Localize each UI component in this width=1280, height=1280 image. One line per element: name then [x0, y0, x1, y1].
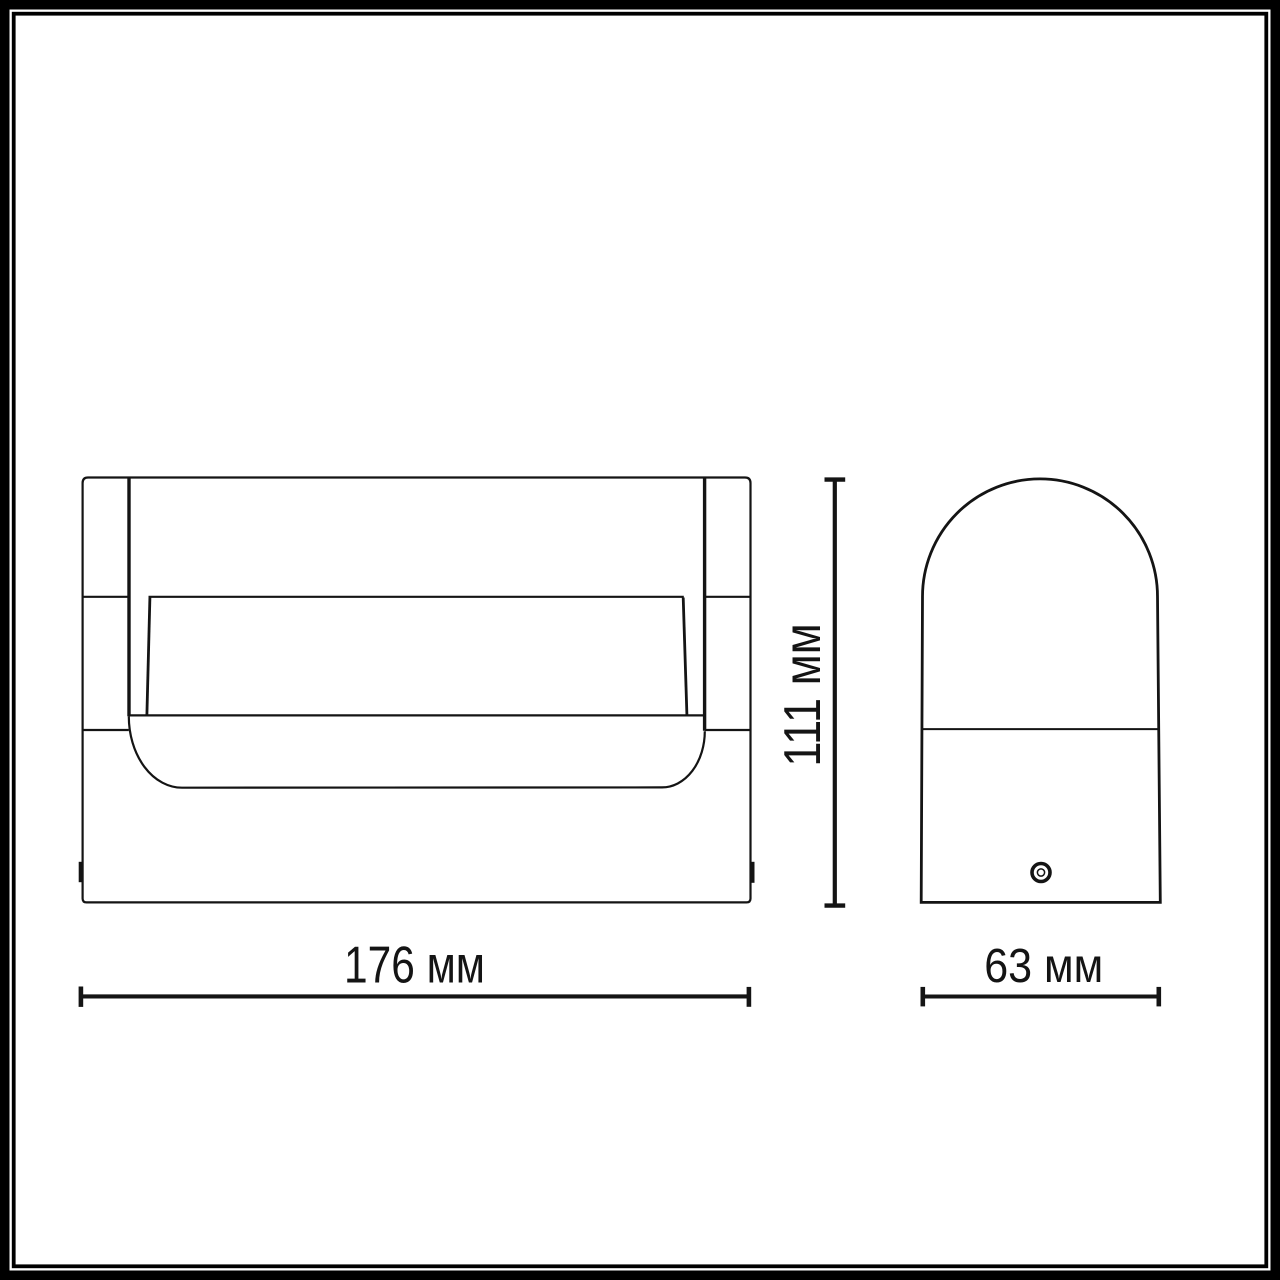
svg-text:63 мм: 63 мм	[984, 940, 1103, 993]
svg-text:176 мм: 176 мм	[344, 937, 485, 995]
svg-text:111 мм: 111 мм	[774, 623, 832, 767]
